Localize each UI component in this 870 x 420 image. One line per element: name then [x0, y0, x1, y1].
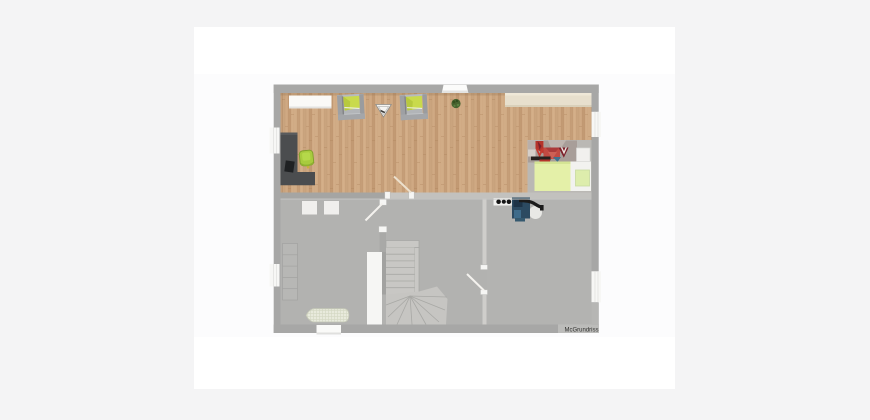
svg-text:McGrundriss: McGrundriss [564, 328, 598, 334]
